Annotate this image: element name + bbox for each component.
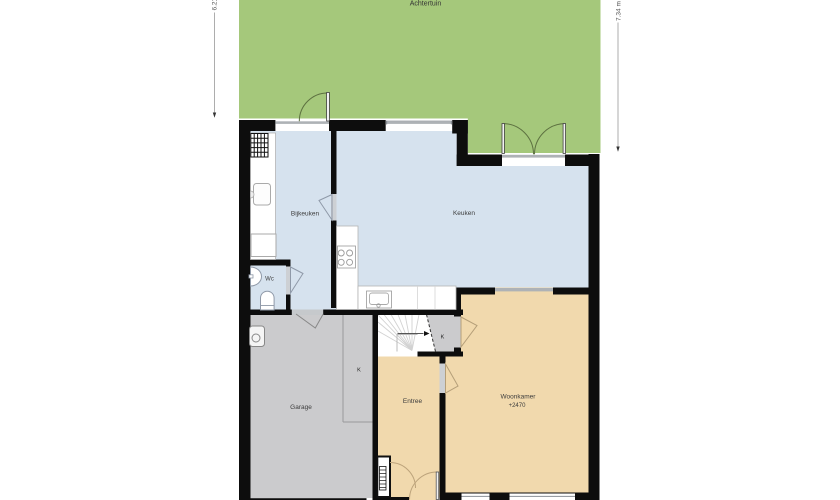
svg-text:Entree: Entree: [403, 398, 423, 405]
svg-text:Keuken: Keuken: [453, 210, 475, 217]
svg-text:K: K: [441, 335, 445, 341]
svg-text:K: K: [357, 368, 361, 374]
svg-text:Woonkamer: Woonkamer: [501, 394, 537, 401]
svg-text:Achtertuin: Achtertuin: [410, 1, 442, 8]
svg-text:7.34 m: 7.34 m: [616, 1, 623, 21]
svg-text:6.21 m: 6.21 m: [212, 0, 219, 11]
svg-text:Bijkeuken: Bijkeuken: [291, 211, 320, 218]
svg-text:+2470: +2470: [509, 403, 527, 409]
svg-text:Wc: Wc: [265, 277, 274, 283]
svg-text:Garage: Garage: [290, 404, 312, 411]
